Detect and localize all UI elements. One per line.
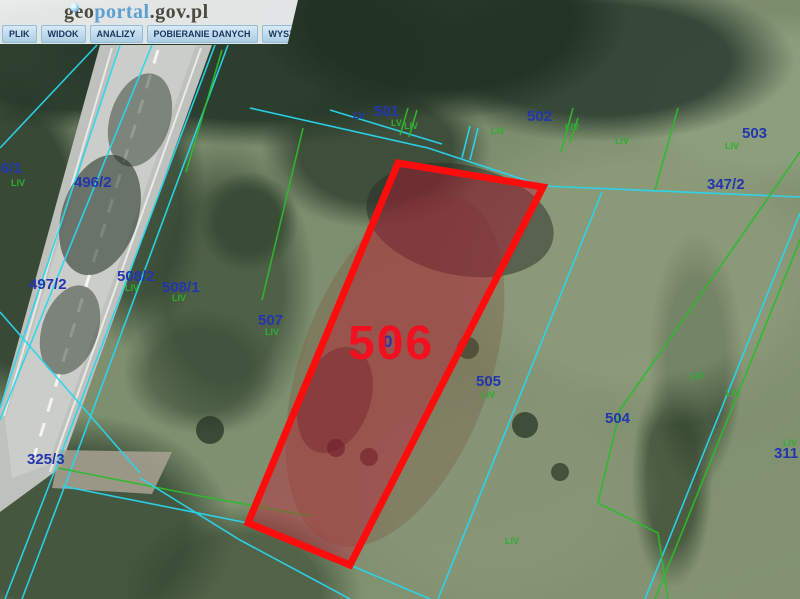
logo-geo: geo xyxy=(64,1,94,23)
geoportal-logo[interactable]: geoportal.gov.pl xyxy=(64,0,209,24)
green-boundary-line xyxy=(400,108,408,135)
bush xyxy=(196,416,224,444)
green-boundary-line xyxy=(262,128,303,300)
bush xyxy=(551,463,569,481)
cyan-boundary-line xyxy=(470,128,478,160)
cyan-boundary-line xyxy=(462,126,470,158)
green-boundary-line xyxy=(570,118,578,143)
green-boundary-line xyxy=(409,110,417,137)
header-panel: geoportal.gov.pl PLIKWIDOKANALIZYPOBIERA… xyxy=(0,0,298,44)
menu-item-pobieranie-danych[interactable]: POBIERANIE DANYCH xyxy=(147,25,258,43)
menu-item-analizy[interactable]: ANALIZY xyxy=(90,25,143,43)
green-boundary-line xyxy=(598,152,800,599)
menu-item-widok[interactable]: WIDOK xyxy=(41,25,86,43)
logo-suffix: .gov.pl xyxy=(150,1,209,23)
green-boundary-line xyxy=(561,108,573,152)
menu-item-plik[interactable]: PLIK xyxy=(2,25,37,43)
logo-globe-icon xyxy=(70,3,79,12)
green-boundary-line xyxy=(655,240,800,599)
map-overlay xyxy=(0,0,800,599)
cyan-boundary-line xyxy=(645,213,800,599)
bush xyxy=(512,412,538,438)
map-viewport[interactable]: 501LV502503347/26/1496/2497/2508/2508/15… xyxy=(0,0,800,599)
logo-portal: portal xyxy=(94,1,149,23)
green-boundary-line xyxy=(655,108,678,190)
